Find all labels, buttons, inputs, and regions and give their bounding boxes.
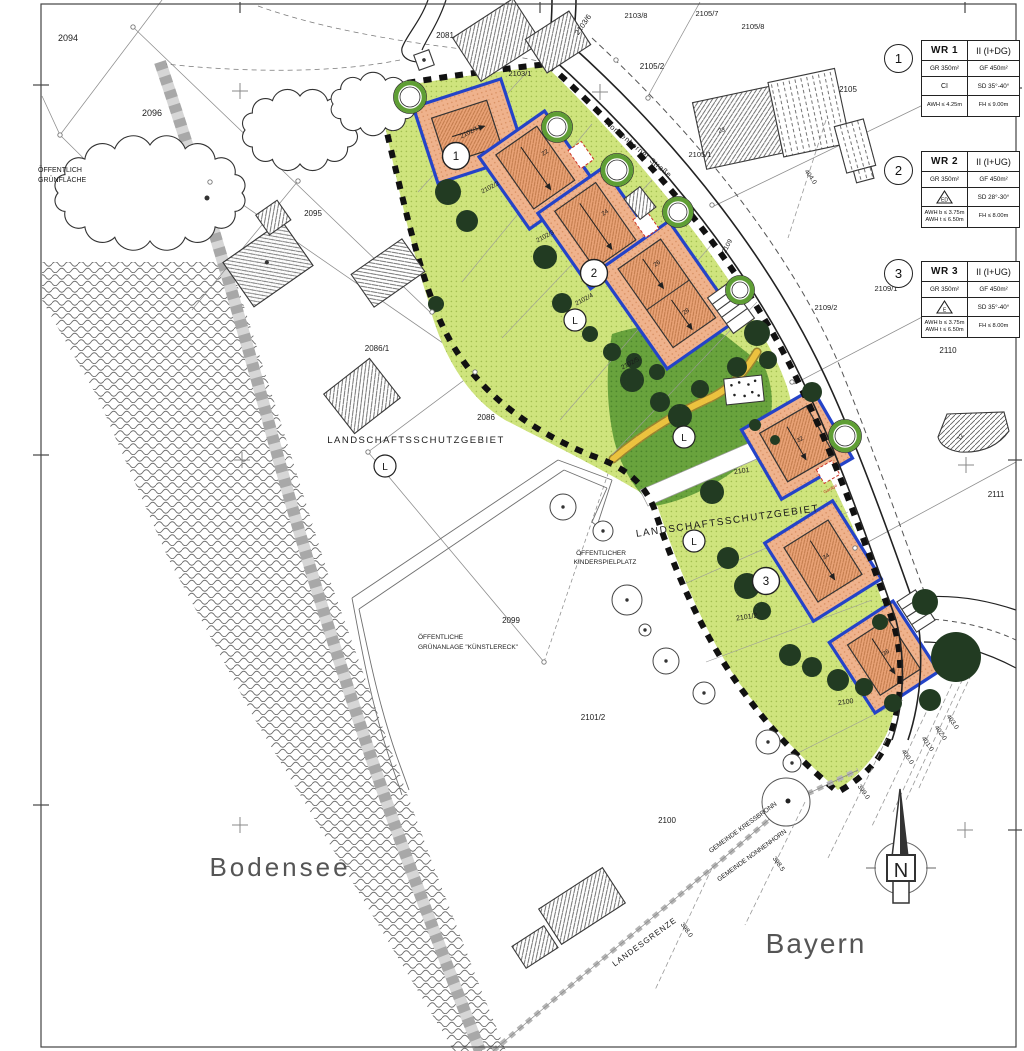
tree-solid (919, 689, 941, 711)
parcel-2109-1: 2109/1 (875, 284, 898, 293)
tree-solid (700, 480, 724, 504)
tree-solid (435, 179, 461, 205)
parcel-2100b: 2100 (658, 816, 676, 825)
tree-solid (649, 364, 665, 380)
tree-solid (717, 547, 739, 569)
boundary-node (542, 660, 546, 664)
tree-solid (749, 419, 761, 431)
tree-solid (650, 392, 670, 412)
tree-canopy-outline (55, 72, 415, 250)
landscape-protection-letter: L (691, 537, 697, 548)
label-kinderspielplatz-1: ÖFFENTLICHER (576, 549, 626, 557)
parcel-2105-8: 2105/8 (742, 22, 765, 31)
label-kinderspielplatz-2: KINDERSPIELPLATZ (574, 559, 637, 566)
tree-solid (912, 589, 938, 615)
parcel-2101-2b: 2101/2 (581, 713, 606, 722)
tree-solid (552, 293, 572, 313)
parcel-2081: 2081 (436, 31, 454, 40)
elev-404: 404.0 (803, 168, 818, 186)
parcel-2110: 2110 (939, 346, 957, 355)
boundary-node (853, 546, 857, 550)
north-arrow (866, 789, 936, 903)
landscape-protection-letter: L (382, 462, 388, 473)
boundary-node (58, 133, 62, 137)
tree-solid (533, 245, 557, 269)
boundary-node (614, 58, 618, 62)
boundary-node (131, 25, 135, 29)
elev-401: 401.0 (920, 735, 935, 753)
tree-solid (428, 296, 444, 312)
tree-planting-ring (394, 81, 427, 114)
north-letter: N (894, 860, 908, 882)
parcel-2109-2: 2109/2 (815, 303, 838, 312)
parcel-2086-1: 2086/1 (365, 344, 390, 353)
zone-number: 2 (591, 268, 597, 280)
boundary-node (366, 450, 370, 454)
tree-solid (872, 614, 888, 630)
boundary-node (296, 179, 300, 183)
label-gruenflaeche-1: ÖFFENTLICH (38, 166, 82, 174)
parcel-2105-7: 2105/7 (696, 9, 719, 18)
boundary-node (473, 370, 477, 374)
site-plan-map: 20942096ÖFFENTLICHGRÜNFLÄCHE209520812103… (0, 0, 1024, 1051)
tree-solid (691, 380, 709, 398)
play-equipment (724, 375, 765, 405)
parcel-2111: 2111 (988, 490, 1005, 499)
label-kuenstlereck-1: ÖFFENTLICHE (418, 633, 464, 641)
boundary-node (646, 96, 650, 100)
elev-403: 403.0 (945, 713, 960, 731)
zone-number: 1 (453, 151, 459, 163)
tree-solid (668, 404, 692, 428)
tree-solid (759, 351, 777, 369)
parcel-2105: 2105 (839, 85, 857, 94)
tree-solid (779, 644, 801, 666)
parcel-2109: 2109 (721, 238, 734, 254)
site-plan-page: 20942096ÖFFENTLICHGRÜNFLÄCHE209520812103… (0, 0, 1024, 1051)
parcel-2095: 2095 (304, 209, 322, 218)
tree-planting-ring (601, 154, 634, 187)
zone-number: 3 (763, 576, 769, 588)
tree-solid (770, 435, 780, 445)
tree-solid (802, 382, 822, 402)
parcel-2105-1: 2105/1 (689, 150, 712, 159)
tree-solid (456, 210, 478, 232)
label-gruenflaeche-2: GRÜNFLÄCHE (38, 176, 87, 184)
tree-solid (802, 657, 822, 677)
tree-solid (582, 326, 598, 342)
elev-398: 398.0 (679, 921, 694, 939)
elev-398-5: 398.5 (771, 855, 786, 873)
boundary-node (208, 180, 212, 184)
elev-399: 399.0 (856, 783, 871, 801)
parcel-2096: 2096 (142, 108, 162, 118)
landscape-protection-letter: L (681, 433, 687, 444)
landscape-protection-letter: L (572, 316, 578, 327)
boundary-node (790, 380, 794, 384)
tree-solid (744, 320, 770, 346)
tree-solid (931, 632, 981, 682)
parcel-2105-2: 2105/2 (640, 62, 665, 71)
tree-solid (827, 669, 849, 691)
tree-solid (884, 694, 902, 712)
label-kuenstlereck-2: GRÜNANLAGE "KÜNSTLERECK" (418, 643, 519, 651)
parcel-2103-1: 2103/1 (509, 69, 532, 78)
parcel-2103-8: 2103/8 (625, 11, 648, 20)
label-bayern: Bayern (766, 928, 867, 959)
elev-402: 402.0 (933, 724, 948, 742)
boundary-node (430, 310, 434, 314)
parcel-2094: 2094 (58, 33, 78, 43)
boundary-node (710, 203, 714, 207)
tree-planting-ring (829, 420, 862, 453)
parcel-2086: 2086 (477, 413, 495, 422)
tree-solid (855, 678, 873, 696)
tree-solid (603, 343, 621, 361)
tree-solid (620, 368, 644, 392)
label-lsg-1: LANDSCHAFTSSCHUTZGEBIET (327, 435, 505, 446)
label-bodensee: Bodensee (209, 852, 350, 882)
parcel-2099: 2099 (502, 616, 520, 625)
tree-solid (727, 357, 747, 377)
